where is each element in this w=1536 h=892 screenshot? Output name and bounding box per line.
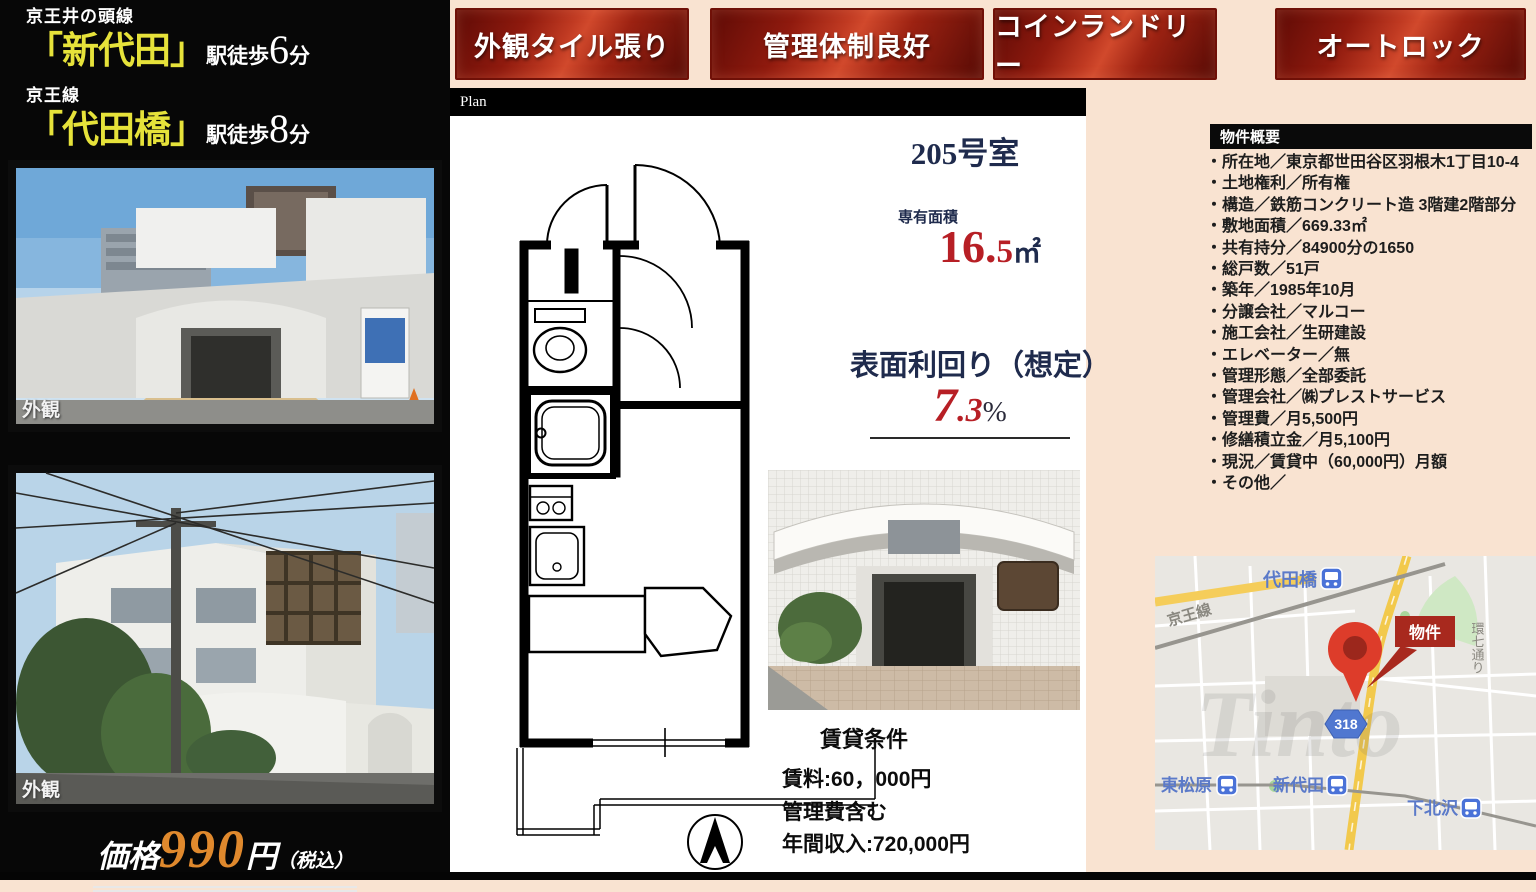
overview-item: ・エレベーター／無 bbox=[1206, 345, 1536, 366]
station-1-minutes: 6 bbox=[269, 27, 289, 72]
station-marker-shimokitazawa: 下北沢 bbox=[1407, 798, 1481, 818]
overview-item: ・敷地面積／669.33㎡ bbox=[1206, 216, 1536, 237]
overview-item: ・土地権利／所有権 bbox=[1206, 173, 1536, 194]
station-access-block: 京王井の頭線 「新代田」駅徒歩6分 京王線 「代田橋」駅徒歩8分 bbox=[26, 2, 310, 160]
exterior-photo-2: 外観 bbox=[8, 465, 442, 812]
rail-line-1-label: 京王井の頭線 bbox=[26, 2, 310, 27]
feature-badge-coin-laundry: コインランドリー bbox=[993, 8, 1217, 80]
overview-item: ・分譲会社／マルコー bbox=[1206, 302, 1536, 323]
exterior-photo-1: 外観 bbox=[8, 160, 442, 432]
feature-badge-tile-exterior: 外観タイル張り bbox=[455, 8, 689, 80]
overview-item: ・管理費／月5,500円 bbox=[1206, 409, 1536, 430]
overview-item: ・施工会社／生研建設 bbox=[1206, 323, 1536, 344]
north-compass-icon bbox=[688, 815, 742, 869]
svg-text:下北沢: 下北沢 bbox=[1407, 798, 1459, 818]
price-tax-note: （税込） bbox=[277, 851, 353, 872]
location-map-art: Tinto 京王線 環七通り 318 物件 代田橋 東松原 bbox=[1155, 556, 1536, 850]
photo-2-caption: 外観 bbox=[22, 775, 60, 802]
room-number: 205号室 bbox=[830, 128, 1100, 173]
station-marker-daitabashi: 代田橋 bbox=[1262, 568, 1342, 590]
rail-line-2-access: 「代田橋」駅徒歩8分 bbox=[26, 108, 310, 150]
overview-item: ・現況／賃貸中（60,000円）月額 bbox=[1206, 452, 1536, 473]
exterior-photo-1-art bbox=[8, 160, 442, 432]
entrance-photo-art bbox=[768, 470, 1080, 710]
rental-fee-note: 管理費含む bbox=[782, 797, 1082, 830]
overview-item: ・所在地／東京都世田谷区羽根木1丁目10-4 bbox=[1206, 152, 1536, 173]
plan-bar: Plan bbox=[450, 88, 1086, 116]
ring-road-label: 環七通り bbox=[1470, 622, 1485, 674]
price-prefix: 価格 bbox=[97, 839, 159, 874]
photo-1-caption: 外観 bbox=[22, 395, 60, 422]
station-2-name: 「代田橋」 bbox=[26, 109, 206, 150]
overview-item: ・その他／ bbox=[1206, 473, 1536, 494]
overview-header: 物件概要 bbox=[1210, 124, 1532, 149]
station-2-minutes: 8 bbox=[269, 106, 289, 151]
overview-item: ・総戸数／51戸 bbox=[1206, 259, 1536, 280]
overview-item: ・築年／1985年10月 bbox=[1206, 280, 1536, 301]
rail-line-1-access: 「新代田」駅徒歩6分 bbox=[26, 29, 310, 71]
overview-list: ・所在地／東京都世田谷区羽根木1丁目10-4 ・土地権利／所有権 ・構造／鉄筋コ… bbox=[1206, 152, 1536, 495]
overview-item: ・修繕積立金／月5,100円 bbox=[1206, 430, 1536, 451]
svg-text:東松原: 東松原 bbox=[1161, 775, 1212, 795]
rental-conditions: 賃貸条件 賃料:60，000円 管理費含む 年間収入:720,000円 bbox=[782, 722, 1082, 862]
overview-item: ・構造／鉄筋コンクリート造 3階建2階部分 bbox=[1206, 195, 1536, 216]
price-block: 価格990円（税込） bbox=[0, 818, 450, 892]
yield-value: 7.3% bbox=[870, 378, 1070, 439]
rental-rent: 賃料:60，000円 bbox=[782, 764, 1082, 797]
bottom-border bbox=[0, 872, 1536, 880]
feature-badge-management: 管理体制良好 bbox=[710, 8, 984, 80]
svg-text:新代田: 新代田 bbox=[1273, 775, 1324, 795]
svg-text:318: 318 bbox=[1334, 716, 1358, 732]
location-map: Tinto 京王線 環七通り 318 物件 代田橋 東松原 bbox=[1155, 556, 1536, 850]
exterior-photo-2-art bbox=[8, 465, 442, 812]
svg-text:代田橋: 代田橋 bbox=[1262, 569, 1318, 590]
area-value: 16.5㎡ bbox=[890, 220, 1090, 273]
entrance-photo bbox=[768, 470, 1080, 710]
overview-item: ・共有持分／84900分の1650 bbox=[1206, 238, 1536, 259]
rental-annual-income: 年間収入:720,000円 bbox=[782, 829, 1082, 862]
svg-text:物件: 物件 bbox=[1409, 623, 1441, 642]
overview-item: ・管理形態／全部委託 bbox=[1206, 366, 1536, 387]
map-watermark: Tinto bbox=[1195, 671, 1403, 777]
price-amount: 990 bbox=[159, 819, 246, 879]
route-318-shield: 318 bbox=[1325, 710, 1367, 738]
floor-plan-panel: 205号室 専有面積 16.5㎡ 表面利回り（想定） 7.3% bbox=[450, 116, 1086, 872]
overview-item: ・管理会社／㈱プレストサービス bbox=[1206, 387, 1536, 408]
rail-line-2-label: 京王線 bbox=[26, 81, 310, 106]
station-marker-shindaita: 新代田 bbox=[1273, 775, 1347, 795]
rental-header: 賃貸条件 bbox=[820, 722, 1082, 754]
feature-badge-auto-lock: オートロック bbox=[1275, 8, 1526, 80]
station-1-name: 「新代田」 bbox=[26, 30, 206, 71]
station-marker-higashimatsubara: 東松原 bbox=[1161, 775, 1237, 795]
left-panel: 京王井の頭線 「新代田」駅徒歩6分 京王線 「代田橋」駅徒歩8分 bbox=[0, 0, 450, 880]
